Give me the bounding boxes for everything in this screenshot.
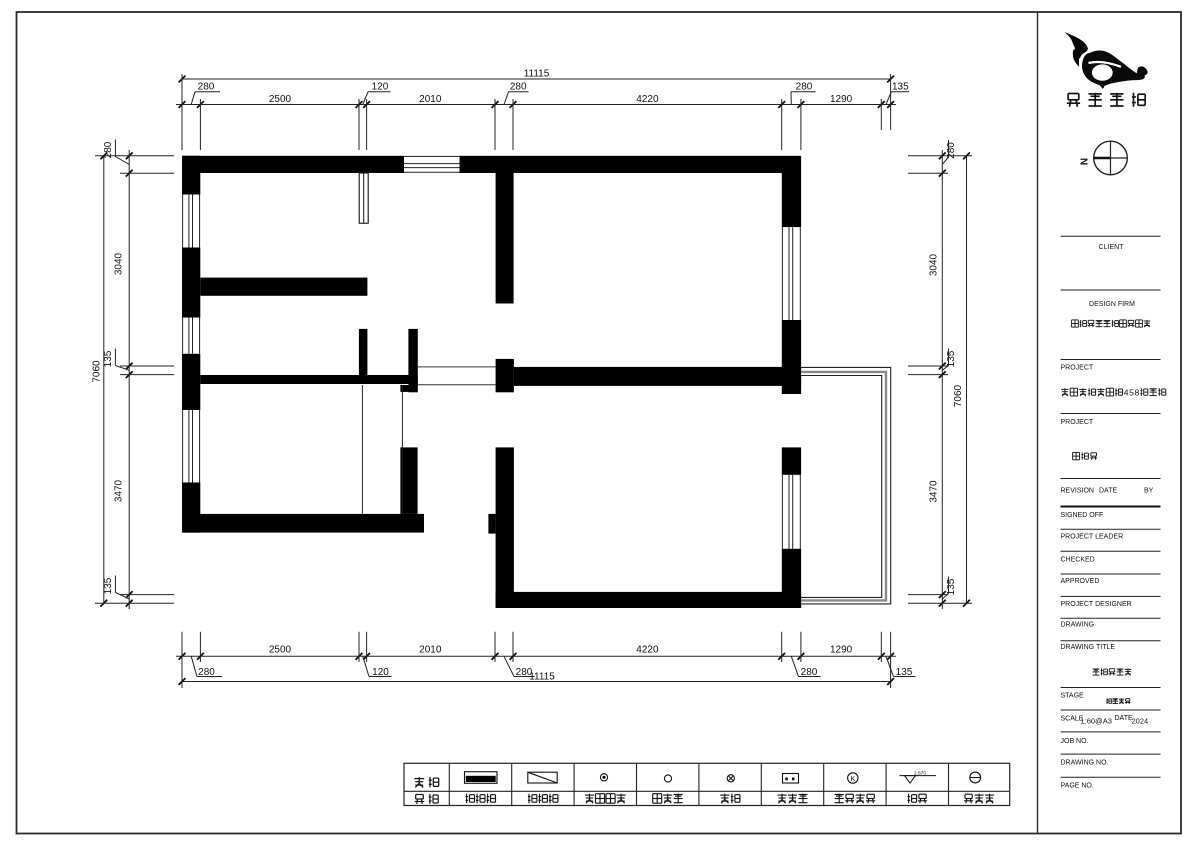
svg-text:8: 8 <box>1135 387 1140 397</box>
svg-text:3470: 3470 <box>114 479 125 502</box>
svg-text:135: 135 <box>946 578 957 595</box>
svg-text:PROJECT LEADER: PROJECT LEADER <box>1061 533 1124 540</box>
svg-text:135: 135 <box>103 350 114 367</box>
svg-text:280: 280 <box>103 141 114 158</box>
svg-text:DATE: DATE <box>1115 715 1133 722</box>
svg-text:4: 4 <box>1124 387 1129 397</box>
svg-text:DRAWING: DRAWING <box>1061 622 1095 629</box>
svg-text:135: 135 <box>103 577 114 594</box>
svg-text:3470: 3470 <box>929 480 940 503</box>
svg-text:135: 135 <box>946 350 957 367</box>
svg-text:280: 280 <box>510 82 527 93</box>
svg-text:N: N <box>1080 158 1091 165</box>
svg-text:BY: BY <box>1144 487 1154 494</box>
svg-text:2500: 2500 <box>269 94 292 105</box>
svg-text:2010: 2010 <box>419 645 442 656</box>
svg-text:2024: 2024 <box>1132 716 1149 725</box>
svg-text:5: 5 <box>1129 387 1134 397</box>
svg-text:DRAWING TITLE: DRAWING TITLE <box>1061 644 1116 651</box>
svg-text:1:60@A3: 1:60@A3 <box>1081 716 1112 725</box>
svg-text:4220: 4220 <box>636 94 659 105</box>
svg-text:120: 120 <box>372 82 389 93</box>
svg-text:280: 280 <box>796 82 813 93</box>
svg-text:2500: 2500 <box>269 645 292 656</box>
svg-text:280: 280 <box>946 142 957 159</box>
svg-text:CHECKED: CHECKED <box>1061 556 1095 563</box>
svg-text:135: 135 <box>892 82 909 93</box>
svg-text:1290: 1290 <box>830 645 853 656</box>
svg-text:280: 280 <box>198 82 215 93</box>
svg-text:PROJECT: PROJECT <box>1061 365 1094 372</box>
svg-text:REVISION: REVISION <box>1061 487 1094 494</box>
svg-text:SIGNED OFF: SIGNED OFF <box>1061 512 1104 519</box>
svg-text:PROJECT: PROJECT <box>1061 419 1094 426</box>
svg-text:11115: 11115 <box>529 672 555 683</box>
svg-text:2.870: 2.870 <box>914 771 926 777</box>
svg-text:DESIGN FIRM: DESIGN FIRM <box>1089 301 1135 308</box>
svg-text:1290: 1290 <box>830 94 853 105</box>
svg-text:2010: 2010 <box>419 94 442 105</box>
svg-text:4220: 4220 <box>636 645 659 656</box>
svg-text:CLIENT: CLIENT <box>1099 244 1125 251</box>
svg-text:7060: 7060 <box>953 384 964 407</box>
svg-text:APPROVED: APPROVED <box>1061 578 1100 585</box>
svg-text:K: K <box>850 776 855 783</box>
svg-text:DRAWING NO.: DRAWING NO. <box>1061 759 1109 766</box>
svg-text:STAGE: STAGE <box>1061 693 1085 700</box>
svg-text:3040: 3040 <box>929 253 940 276</box>
svg-text:JOB NO.: JOB NO. <box>1061 738 1089 745</box>
svg-text:PROJECT DESIGNER: PROJECT DESIGNER <box>1061 601 1132 608</box>
svg-text:7060: 7060 <box>92 360 103 383</box>
svg-text:PAGE NO.: PAGE NO. <box>1061 783 1094 790</box>
svg-text:3040: 3040 <box>114 252 125 275</box>
svg-text:DATE: DATE <box>1099 487 1117 494</box>
svg-text:11115: 11115 <box>524 69 550 80</box>
